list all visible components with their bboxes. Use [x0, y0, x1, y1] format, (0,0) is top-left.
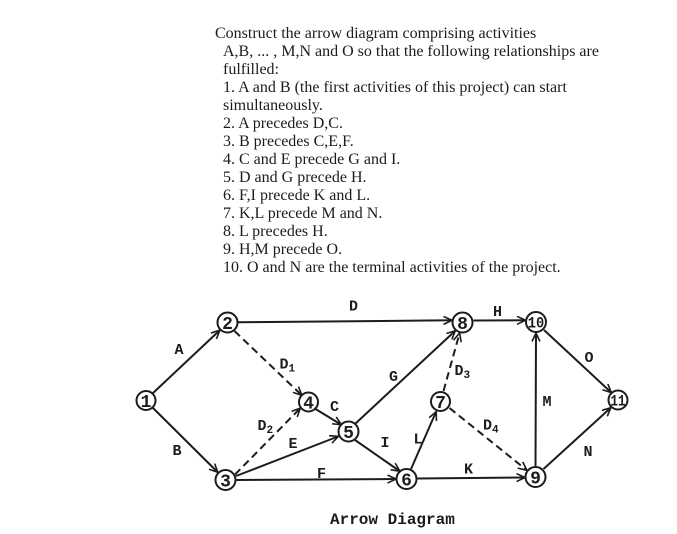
- svg-text:B: B: [173, 443, 182, 460]
- svg-text:D4: D4: [483, 418, 499, 437]
- svg-text:8: 8: [457, 315, 468, 335]
- svg-text:F: F: [317, 466, 326, 483]
- svg-text:11: 11: [611, 393, 626, 411]
- svg-text:D: D: [349, 299, 358, 316]
- svg-text:K: K: [464, 462, 473, 479]
- svg-text:O: O: [585, 350, 594, 367]
- svg-text:D2: D2: [258, 418, 274, 437]
- svg-text:N: N: [584, 444, 593, 461]
- svg-text:4: 4: [303, 394, 314, 414]
- svg-text:M: M: [543, 394, 552, 411]
- svg-text:9: 9: [530, 469, 541, 489]
- svg-text:D1: D1: [280, 357, 296, 376]
- svg-text:3: 3: [220, 472, 231, 492]
- svg-text:6: 6: [401, 471, 412, 491]
- svg-text:Arrow Diagram: Arrow Diagram: [330, 511, 455, 529]
- svg-text:5: 5: [343, 424, 354, 444]
- svg-text:D3: D3: [455, 363, 471, 382]
- svg-text:C: C: [330, 399, 339, 416]
- svg-text:G: G: [389, 369, 398, 386]
- svg-text:2: 2: [222, 315, 233, 335]
- svg-text:I: I: [381, 435, 390, 452]
- svg-text:L: L: [414, 432, 423, 449]
- svg-text:7: 7: [435, 394, 446, 414]
- svg-text:A: A: [175, 342, 184, 359]
- svg-text:10: 10: [528, 315, 545, 333]
- svg-text:1: 1: [141, 393, 152, 413]
- svg-text:H: H: [493, 304, 502, 321]
- svg-text:E: E: [289, 436, 298, 453]
